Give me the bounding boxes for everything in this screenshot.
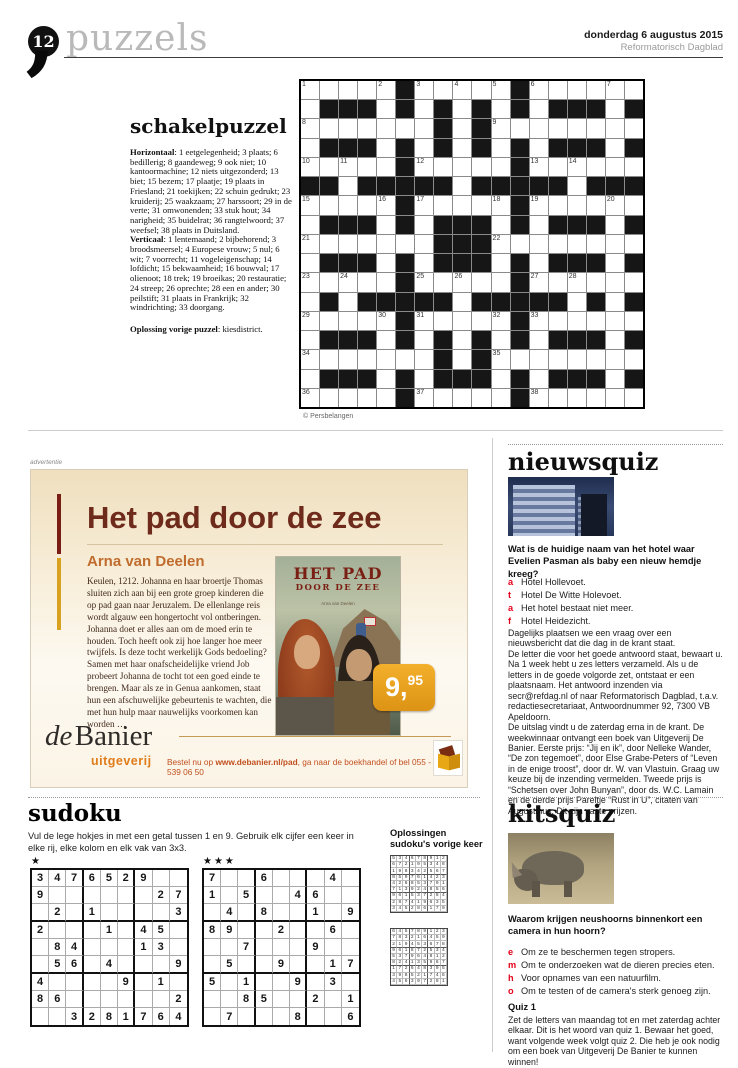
crossword-cell [549,119,567,137]
crossword-cell: 28 [568,273,586,291]
crossword-cell [472,158,490,176]
clue-number: 5 [493,81,497,89]
crossword-cell [358,235,376,253]
crossword-black-cell [434,119,452,137]
clue-number: 17 [416,196,424,204]
crossword-black-cell [377,177,395,195]
crossword-cell: 13 [530,158,548,176]
clue-number: 29 [302,312,310,320]
advertisement-marker: advertentie [30,459,62,466]
sudoku-cell [135,991,152,1008]
crossword-cell [587,312,605,330]
crossword-cell: 29 [301,312,319,330]
sudoku-cell: 4 [66,939,83,956]
crossword-cell [453,100,471,118]
crossword-cell [606,370,624,388]
crossword-cell [549,312,567,330]
sudoku-cell [101,991,118,1008]
crossword-cell [530,235,548,253]
crossword-black-cell [358,293,376,311]
crossword-cell [358,81,376,99]
crossword-cell [568,389,586,407]
sudoku-cell: 4 [290,887,307,904]
crossword-cell: 34 [301,350,319,368]
crossword-black-cell [568,370,586,388]
crossword-cell: 25 [415,273,433,291]
rhino-leg-shape [564,881,572,897]
crossword-cell [415,331,433,349]
cover-girl-face [294,635,320,669]
crossword-black-cell [358,177,376,195]
crossword-black-cell [472,350,490,368]
crossword-black-cell [434,254,452,272]
cover-boy-face [346,649,372,681]
crossword-cell [377,235,395,253]
sudoku-cell [170,974,187,991]
sudoku-cell [84,887,101,904]
sudoku-cell [118,991,135,1008]
sudoku-cell [290,939,307,956]
crossword-black-cell [511,293,529,311]
sudoku-cell [290,870,307,887]
crossword-cell [530,370,548,388]
crossword-cell [320,81,338,99]
clue-number: 24 [340,273,348,281]
sudoku-cell [135,956,152,974]
crossword-cell [453,331,471,349]
clue-number: 10 [302,158,310,166]
sudoku-cell: 4 [221,904,238,922]
crossword-black-cell [396,312,414,330]
quiz-option: mOm te onderzoeken wat de dieren precies… [508,959,726,972]
crossword-black-cell [530,177,548,195]
crossword-cell: 3 [415,81,433,99]
crossword-cell [434,158,452,176]
open-book-icon [433,740,463,776]
publisher-logo: de Banier [45,720,152,752]
sudoku-cell: 9 [170,956,187,974]
crossword-cell [320,196,338,214]
crossword-black-cell [625,254,643,272]
crossword-cell [339,177,357,195]
clue-number: 4 [454,81,458,89]
sudoku-cell: 6 [256,870,273,887]
crossword-black-cell [320,177,338,195]
sudoku-cell: 2 [170,991,187,1008]
ad-accent-bar-red [57,494,61,554]
crossword-black-cell [530,293,548,311]
crossword-cell [453,293,471,311]
sudoku-cell: 8 [49,939,66,956]
sudoku-cell: 6 [153,1008,170,1025]
crossword-cell [301,293,319,311]
sudoku-cell [101,974,118,991]
crossword-cell: 27 [530,273,548,291]
crossword-cell [568,177,586,195]
crossword-cell [606,100,624,118]
clue-number: 30 [378,312,386,320]
crossword-black-cell [396,139,414,157]
sudoku-cell [204,1008,221,1025]
sudoku-cell: 7 [170,887,187,904]
sudoku-cell [256,974,273,991]
crossword-cell [434,81,452,99]
crossword-cell [568,196,586,214]
crossword-cell [453,350,471,368]
sudoku-cell [135,887,152,904]
crossword-black-cell [587,177,605,195]
clue-number: 3 [416,81,420,89]
sudoku-cell: 9 [290,974,307,991]
clue-number: 27 [531,273,539,281]
crossword-cell [453,312,471,330]
crossword-black-cell [472,119,490,137]
sudoku-solution-1: 5346789126721953481983425678597614234268… [390,855,448,913]
crossword-black-cell [511,177,529,195]
crossword-cell: 1 [301,81,319,99]
crossword-black-cell [396,100,414,118]
clue-number: 37 [416,389,424,397]
crossword-cell [453,158,471,176]
nieuwsquiz-options: aHotel Hollevoet.tHotel De Witte Holevoe… [508,576,726,628]
sudoku-cell [84,939,101,956]
sudoku-cell: 6 [84,870,101,887]
sudoku-cell [32,904,49,922]
option-text: Hotel De Witte Holevoet. [521,590,622,600]
sudoku-cell: 4 [135,922,152,939]
sudoku-cell [325,1008,342,1025]
header-rule [64,57,723,58]
crossword-cell: 35 [492,350,510,368]
sudoku-cell: 5 [221,956,238,974]
sudoku-cell [325,939,342,956]
crossword-black-cell [434,235,452,253]
sudoku-cell [342,887,359,904]
sudoku-cell [49,887,66,904]
sudoku-cell: 3 [32,870,49,887]
option-letter: t [508,589,521,602]
sudoku-solution-2: 6457891237832164592194536789618725345379… [390,928,448,986]
sudoku-cell [273,991,290,1008]
crossword-black-cell [434,177,452,195]
sudoku-cell: 6 [49,991,66,1008]
sudoku-cell [118,939,135,956]
crossword-cell [453,389,471,407]
crossword-cell [625,196,643,214]
sudoku-cell: 1 [204,887,221,904]
crossword-black-cell [568,254,586,272]
crossword-black-cell [549,293,567,311]
crossword-cell [339,196,357,214]
crossword-black-cell [453,216,471,234]
sudoku-cell [221,991,238,1008]
page-title: puzzels [66,20,208,58]
crossword-cell [492,216,510,234]
clue-number: 23 [302,273,310,281]
crossword-black-cell [453,235,471,253]
crossword-cell [453,177,471,195]
sudoku-cell [204,939,221,956]
crossword-black-cell [320,100,338,118]
cover-girl-shirt [275,697,334,736]
crossword-black-cell [434,139,452,157]
option-text: Hotel Heidezicht. [521,616,590,626]
quiz-option: aHet hotel bestaat niet meer. [508,602,726,615]
sudoku-cell: 8 [101,1008,118,1025]
crossword-cell: 36 [301,389,319,407]
crossword-credit: © Persbelangen [303,413,353,420]
crossword-cell [606,273,624,291]
sudoku-cell [307,956,324,974]
crossword-cell [320,273,338,291]
crossword-cell [339,119,357,137]
crossword-black-cell [511,158,529,176]
crossword-cell [358,158,376,176]
clue-number: 2 [378,81,382,89]
sudoku-cell: 4 [325,870,342,887]
sudoku-cell: 8 [256,904,273,922]
sudoku-cell [118,956,135,974]
crossword-cell [530,350,548,368]
crossword-black-cell [396,196,414,214]
crossword-black-cell [587,331,605,349]
crossword-cell [568,81,586,99]
sudoku-cell: 8 [238,991,255,1008]
sudoku-cell [84,956,101,974]
clue-number: 31 [416,312,424,320]
crossword-cell [606,216,624,234]
crossword-cell: 10 [301,158,319,176]
sudoku-cell: 9 [32,887,49,904]
crossword-cell [568,235,586,253]
quiz1-label: Quiz 1 [508,1002,536,1012]
crossword-cell [492,273,510,291]
crossword-cell [625,119,643,137]
crossword-cell [415,350,433,368]
crossword-cell [396,235,414,253]
crossword-black-cell [625,331,643,349]
crossword-cell [415,235,433,253]
crossword-black-cell [472,254,490,272]
crossword-cell [492,370,510,388]
crossword-cell [492,158,510,176]
sudoku-cell: 8 [290,1008,307,1025]
crossword-cell: 8 [301,119,319,137]
sudoku-cell [49,974,66,991]
crossword-cell [415,254,433,272]
sudoku-grid-easy: 34765299272132145841356494918623281764 [30,868,189,1027]
crossword-black-cell [396,254,414,272]
sudoku-cell [32,956,49,974]
crossword-black-cell [320,293,338,311]
crossword-cell [549,389,567,407]
sudoku-cell [342,922,359,939]
crossword-cell [472,81,490,99]
crossword-cell: 6 [530,81,548,99]
crossword-cell [530,100,548,118]
sudoku-cell [170,870,187,887]
crossword-black-cell [549,216,567,234]
sudoku-cell: 8 [204,922,221,939]
crossword-cell [377,139,395,157]
sudoku-cell [32,939,49,956]
sudoku-cell [170,922,187,939]
crossword-black-cell [472,235,490,253]
sudoku-cell: 1 [135,939,152,956]
sudoku-cell [84,974,101,991]
crossword-black-cell [511,81,529,99]
crossword-cell [625,158,643,176]
sudoku2-difficulty-stars: ★★★ [203,856,236,867]
crossword-cell [530,139,548,157]
crossword-cell [625,273,643,291]
crossword-cell [377,158,395,176]
sudoku-cell [135,904,152,922]
crossword-cell [377,389,395,407]
sudoku-cell [256,939,273,956]
crossword-cell: 19 [530,196,548,214]
crossword-cell [587,81,605,99]
clue-number: 28 [569,273,577,281]
crossword-cell [301,139,319,157]
crossword-black-cell [549,100,567,118]
crossword-cell [472,273,490,291]
sudoku-cell [238,904,255,922]
crossword-black-cell [568,216,586,234]
crossword-black-cell [358,331,376,349]
crossword-black-cell [472,100,490,118]
crossword-cell: 30 [377,312,395,330]
sudoku-cell: 5 [256,991,273,1008]
sudoku-cell [273,904,290,922]
crossword-cell [549,273,567,291]
crossword-cell: 4 [453,81,471,99]
crossword-black-cell [625,293,643,311]
clue-number: 6 [531,81,535,89]
ad-author: Arna van Deelen [87,553,205,570]
crossword-black-cell [625,177,643,195]
crossword-black-cell [434,216,452,234]
crossword-cell [511,119,529,137]
crossword-cell [339,312,357,330]
ad-book-title: Het pad door de zee [87,500,382,536]
crossword-cell [358,273,376,291]
sudoku-cell: 7 [135,1008,152,1025]
sudoku-cell [66,904,83,922]
crossword-black-cell [472,370,490,388]
option-text: Om te onderzoeken wat de dieren precies … [521,960,715,970]
sudoku-title: sudoku [28,801,122,827]
sudoku-cell [153,870,170,887]
crossword-black-cell [434,350,452,368]
crossword-cell [530,331,548,349]
crossword-black-cell [511,370,529,388]
crossword-cell [434,389,452,407]
crossword-cell [339,293,357,311]
crossword-cell [396,119,414,137]
option-text: Om ze te beschermen tegen stropers. [521,947,675,957]
sudoku-cell [256,922,273,939]
nieuwsquiz-question: Wat is de huidige naam van het hotel waa… [508,543,726,580]
horizontal-clues: Horizontaal: 1 eetgelegenheid; 3 plaats;… [130,148,294,235]
price-euros: 9, [385,672,408,702]
rhino-photo [508,833,614,904]
sudoku-cell: 7 [66,870,83,887]
publication-name: Reformatorisch Dagblad [450,42,723,53]
crossword-cell [568,312,586,330]
clue-number: 20 [607,196,615,204]
crossword-cell [396,350,414,368]
crossword-cell [606,119,624,137]
clue-number: 16 [378,196,386,204]
clue-number: 1 [302,81,306,89]
crossword-black-cell [549,331,567,349]
crossword-black-cell [453,370,471,388]
sudoku-cell [153,904,170,922]
sudoku-cell: 4 [170,1008,187,1025]
kitsquiz-options: eOm ze te beschermen tegen stropers.mOm … [508,946,726,998]
price-cents: 95 [407,672,423,688]
crossword-black-cell [511,196,529,214]
crossword-cell [587,389,605,407]
crossword-cell: 22 [492,235,510,253]
crossword-cell: 9 [492,119,510,137]
clue-number: 34 [302,350,310,358]
sudoku-cell [290,956,307,974]
sudoku-cell: 9 [342,904,359,922]
quiz-option: hVoor opnames van een natuurfilm. [508,972,726,985]
crossword-black-cell [320,370,338,388]
crossword-black-cell [472,331,490,349]
crossword-black-cell [320,331,338,349]
crossword-black-cell [625,370,643,388]
crossword-black-cell [396,273,414,291]
crossword-black-cell [320,254,338,272]
crossword-black-cell [587,139,605,157]
clue-number: 19 [531,196,539,204]
sudoku-cell: 4 [49,870,66,887]
crossword-cell [511,350,529,368]
crossword-black-cell [492,177,510,195]
crossword-cell [549,158,567,176]
sudoku-cell [221,974,238,991]
crossword-cell: 2 [377,81,395,99]
sudoku-cell [307,974,324,991]
sudoku-cell: 7 [221,1008,238,1025]
crossword-black-cell [587,254,605,272]
publisher-subtitle: uitgeverij [91,754,152,768]
crossword-cell [320,158,338,176]
sudoku-cell: 8 [32,991,49,1008]
sudoku-cell: 2 [84,1008,101,1025]
crossword-cell [530,254,548,272]
advertisement: Het pad door de zee Arna van Deelen Keul… [30,469,468,788]
sudoku-cell [342,939,359,956]
sudoku-cell [153,991,170,1008]
crossword-cell [358,350,376,368]
clue-number: 22 [493,235,501,243]
crossword-black-cell [472,216,490,234]
option-text: Hotel Hollevoet. [521,577,586,587]
sudoku-cell [273,974,290,991]
crossword-cell: 23 [301,273,319,291]
sudoku-cell [170,939,187,956]
crossword-cell [339,389,357,407]
sudoku-cell: 5 [204,974,221,991]
sudoku-cell [221,939,238,956]
crossword-cell [301,331,319,349]
crossword-cell: 24 [339,273,357,291]
